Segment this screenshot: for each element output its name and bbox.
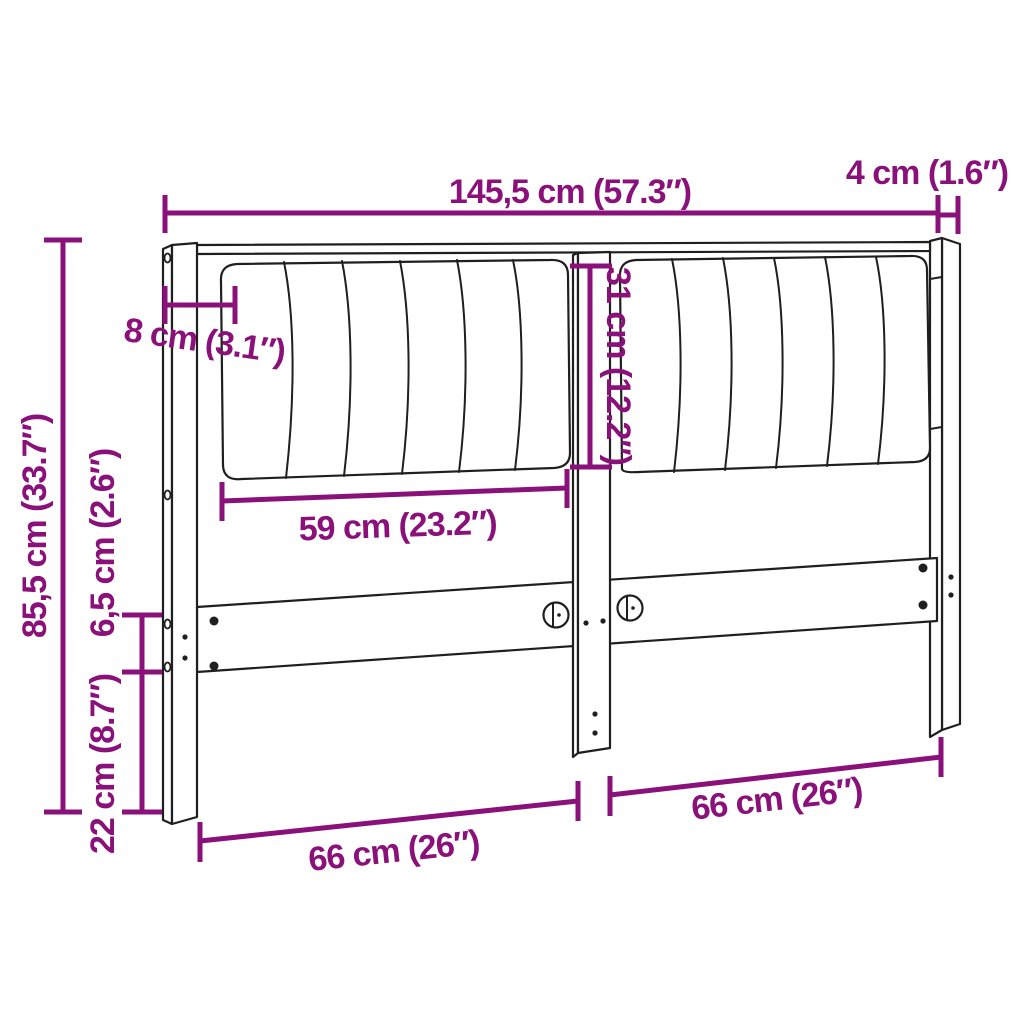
screw-hole-icon xyxy=(165,254,171,263)
right-post xyxy=(930,238,960,737)
cam-lock-icon xyxy=(618,596,643,621)
screw-icon xyxy=(919,601,928,610)
screw-icon xyxy=(210,617,219,626)
cam-lock-icon xyxy=(544,603,569,628)
headboard-diagram-canvas: 145,5 cm (57.3″) 4 cm (1.6″) 85,5 cm (33… xyxy=(0,0,1024,1024)
dim-label-cushion-height: 31 cm (12.2″) xyxy=(599,267,637,465)
dowel-hole xyxy=(592,711,597,716)
screw-icon xyxy=(919,564,928,573)
dowel-hole xyxy=(583,620,588,625)
dim-label-total-width: 145,5 cm (57.3″) xyxy=(449,173,691,211)
dim-label-post-width: 4 cm (1.6″) xyxy=(846,154,1008,192)
dowel-hole xyxy=(592,730,597,735)
dim-label-leg-span-right: 66 cm (26″) xyxy=(689,770,864,827)
dowel-hole xyxy=(948,574,953,579)
right-post-side-face xyxy=(942,238,960,730)
dowel-hole xyxy=(182,655,187,660)
dim-label-cushion-width: 59 cm (23.2″) xyxy=(298,504,497,549)
dim-total-height: 85,5 cm (33.7″) xyxy=(16,240,82,812)
screw-hole-icon xyxy=(165,491,171,500)
dim-label-rail-height: 6,5 cm (2.6″) xyxy=(84,449,122,638)
dim-label-leg-span-left: 66 cm (26″) xyxy=(307,823,482,879)
bottom-rail xyxy=(197,558,937,672)
screw-icon xyxy=(210,662,219,671)
dim-line xyxy=(222,488,567,501)
dim-leg-span-left: 66 cm (26″) xyxy=(200,781,578,879)
dim-post-width: 4 cm (1.6″) xyxy=(846,154,1008,234)
right-post-front-face xyxy=(930,238,942,737)
dowel-hole xyxy=(600,618,605,623)
dim-leg-span-right: 66 cm (26″) xyxy=(610,737,941,828)
dim-label-total-height: 85,5 cm (33.7″) xyxy=(16,414,54,638)
dim-label-lower-height: 22 cm (8.7″) xyxy=(84,674,122,854)
dim-rail-and-lower-height: 6,5 cm (2.6″) 22 cm (8.7″) xyxy=(84,449,162,854)
product-dimension-diagram: 145,5 cm (57.3″) 4 cm (1.6″) 85,5 cm (33… xyxy=(0,0,1024,1024)
dowel-hole xyxy=(182,634,187,639)
dowel-hole xyxy=(948,592,953,597)
dim-cushion-width: 59 cm (23.2″) xyxy=(222,469,567,548)
right-cushion xyxy=(620,256,930,472)
right-cushion-outline xyxy=(620,256,930,472)
screw-hole-icon xyxy=(165,620,171,629)
screw-hole-icon xyxy=(165,663,171,672)
headboard-drawing xyxy=(163,238,960,824)
top-rail xyxy=(197,242,930,254)
dim-total-width: 145,5 cm (57.3″) xyxy=(165,173,938,233)
